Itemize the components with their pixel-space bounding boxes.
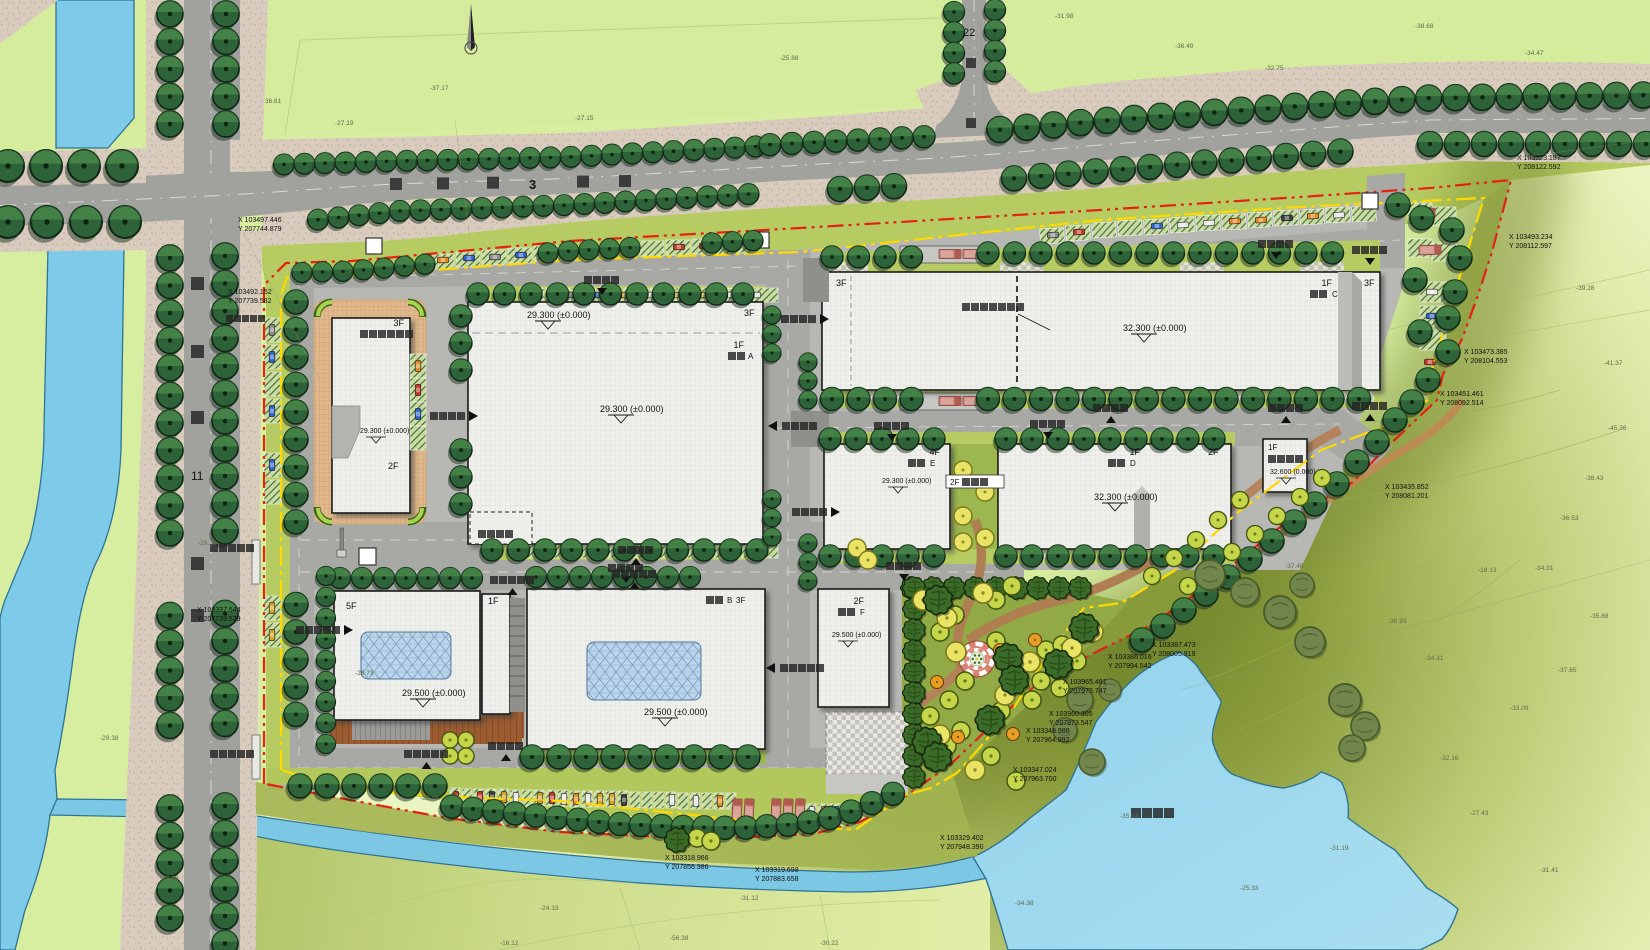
svg-text:Y 208122.592: Y 208122.592	[1517, 164, 1561, 171]
svg-text:-31.12: -31.12	[740, 895, 759, 902]
svg-text:29.500 (±0.000): 29.500 (±0.000)	[832, 632, 881, 639]
svg-text:X 103318.966: X 103318.966	[665, 855, 709, 862]
svg-text:3F: 3F	[836, 278, 847, 288]
svg-text:X 103523.187: X 103523.187	[1517, 155, 1561, 162]
svg-text:X 103473.385: X 103473.385	[1464, 349, 1508, 356]
svg-text:Y 207856.386: Y 207856.386	[665, 864, 709, 871]
svg-text:-36.49: -36.49	[1175, 43, 1194, 50]
svg-text:3F: 3F	[736, 596, 745, 605]
svg-text:Y 207963.700: Y 207963.700	[1013, 776, 1057, 783]
svg-text:36.81: 36.81	[265, 98, 282, 105]
svg-text:Y 208081.201: Y 208081.201	[1385, 493, 1429, 500]
svg-text:Y 207744.879: Y 207744.879	[238, 226, 282, 233]
svg-text:-28.73: -28.73	[355, 670, 374, 677]
svg-text:4F: 4F	[929, 447, 940, 457]
svg-text:X 103492.152: X 103492.152	[228, 289, 272, 296]
svg-text:X 103497.446: X 103497.446	[238, 217, 282, 224]
svg-text:-24.33: -24.33	[540, 905, 559, 912]
svg-text:-30.22: -30.22	[820, 940, 839, 947]
svg-text:Y 207994.542: Y 207994.542	[1108, 663, 1152, 670]
svg-text:-39.28: -39.28	[1576, 285, 1595, 292]
svg-text:Y 207973.547: Y 207973.547	[1049, 720, 1093, 727]
svg-text:-35.14: -35.14	[1120, 813, 1139, 820]
svg-text:Y 207739.582: Y 207739.582	[228, 298, 272, 305]
svg-text:X 103493.234: X 103493.234	[1509, 234, 1553, 241]
svg-text:-36.93: -36.93	[1388, 618, 1407, 625]
svg-text:11: 11	[191, 469, 204, 483]
svg-text:-31.41: -31.41	[1540, 867, 1559, 874]
svg-text:29.300 (±0.000): 29.300 (±0.000)	[360, 428, 409, 435]
svg-text:X 103960.305: X 103960.305	[1049, 711, 1093, 718]
svg-text:1F: 1F	[733, 340, 744, 350]
svg-text:-31.19: -31.19	[1330, 845, 1349, 852]
svg-text:Y 207739.529: Y 207739.529	[197, 616, 241, 623]
svg-text:-38.68: -38.68	[1415, 23, 1434, 30]
svg-text:29.500 (±0.000): 29.500 (±0.000)	[644, 707, 707, 717]
svg-text:-56.38: -56.38	[670, 935, 689, 942]
svg-text:32.300 (±0.000): 32.300 (±0.000)	[1094, 492, 1157, 502]
svg-text:3F: 3F	[393, 318, 404, 328]
svg-text:-27.19: -27.19	[335, 120, 354, 127]
svg-text:2F: 2F	[1208, 447, 1219, 457]
svg-text:3: 3	[529, 177, 536, 192]
svg-text:-28.48: -28.48	[420, 795, 439, 802]
svg-text:29.300 (±0.000): 29.300 (±0.000)	[527, 310, 590, 320]
svg-text:22: 22	[963, 27, 975, 39]
svg-text:Y 208112.597: Y 208112.597	[1509, 243, 1552, 250]
svg-text:2F: 2F	[853, 596, 864, 606]
svg-text:X 103965.481: X 103965.481	[1063, 679, 1107, 686]
svg-text:C: C	[1332, 290, 1338, 299]
svg-text:1F: 1F	[1268, 443, 1277, 452]
svg-text:Y 208005.919: Y 208005.919	[1152, 651, 1196, 658]
svg-text:X 103329.402: X 103329.402	[940, 835, 984, 842]
svg-text:-36.41: -36.41	[1608, 90, 1627, 97]
svg-text:-38.43: -38.43	[1585, 475, 1604, 482]
svg-text:-34.38: -34.38	[1015, 900, 1034, 907]
svg-text:F: F	[860, 608, 865, 617]
svg-text:-34.31: -34.31	[1425, 655, 1444, 662]
svg-text:3F: 3F	[1364, 278, 1375, 288]
svg-text:E: E	[930, 459, 935, 468]
svg-text:X 103386.016: X 103386.016	[1108, 654, 1152, 661]
svg-text:X 103348.986: X 103348.986	[1026, 728, 1070, 735]
svg-text:-18.13: -18.13	[1478, 567, 1497, 574]
svg-text:32.300 (±0.000): 32.300 (±0.000)	[1123, 323, 1186, 333]
svg-text:X 103387.473: X 103387.473	[1152, 642, 1196, 649]
svg-text:-33.09: -33.09	[1510, 705, 1529, 712]
svg-text:A: A	[748, 352, 754, 361]
svg-text:Y 207883.658: Y 207883.658	[755, 876, 799, 883]
svg-text:-45.36: -45.36	[1608, 425, 1627, 432]
svg-text:-34.47: -34.47	[1525, 50, 1544, 57]
svg-text:-36.53: -36.53	[1560, 515, 1579, 522]
svg-text:3F: 3F	[744, 308, 755, 318]
svg-text:-25.88: -25.88	[780, 55, 799, 62]
svg-text:B: B	[727, 596, 732, 605]
svg-text:-28.68: -28.68	[160, 875, 179, 882]
svg-text:1F: 1F	[488, 596, 499, 606]
svg-text:X 103435.852: X 103435.852	[1385, 484, 1429, 491]
svg-text:D: D	[1130, 459, 1136, 468]
svg-text:32.600 (0.000): 32.600 (0.000)	[1270, 469, 1316, 476]
svg-text:-35.88: -35.88	[1590, 613, 1609, 620]
svg-text:-34.31: -34.31	[1535, 565, 1554, 572]
svg-text:-37.17: -37.17	[430, 85, 449, 92]
svg-text:Y 207964.992: Y 207964.992	[1026, 737, 1070, 744]
svg-text:-37.48: -37.48	[1285, 563, 1304, 570]
svg-text:29.300 (±0.000): 29.300 (±0.000)	[882, 478, 931, 485]
svg-text:Y 208092.514: Y 208092.514	[1440, 400, 1484, 407]
svg-text:Y 208104.553: Y 208104.553	[1464, 358, 1508, 365]
svg-text:-27.15: -27.15	[575, 115, 594, 122]
svg-text:-32.75: -32.75	[1265, 65, 1284, 72]
svg-text:X 103319.698: X 103319.698	[755, 867, 799, 874]
svg-text:2F: 2F	[388, 461, 399, 471]
svg-text:X 103347.024: X 103347.024	[1013, 767, 1057, 774]
svg-text:5F: 5F	[346, 601, 357, 611]
svg-text:2F: 2F	[950, 478, 959, 487]
svg-text:X 103337.544: X 103337.544	[197, 607, 241, 614]
svg-text:Y 207975.747: Y 207975.747	[1063, 688, 1107, 695]
svg-text:-41.37: -41.37	[1604, 360, 1623, 367]
svg-text:X 103451.461: X 103451.461	[1440, 391, 1484, 398]
svg-text:-29.38: -29.38	[100, 735, 119, 742]
svg-text:-37.65: -37.65	[1558, 667, 1577, 674]
svg-text:1F: 1F	[1321, 278, 1332, 288]
svg-text:-25.33: -25.33	[1240, 885, 1259, 892]
svg-text:-27.43: -27.43	[1470, 810, 1489, 817]
svg-text:29.300 (±0.000): 29.300 (±0.000)	[600, 404, 663, 414]
svg-text:-32.16: -32.16	[1440, 755, 1459, 762]
svg-text:Y 207948.390: Y 207948.390	[940, 844, 984, 851]
svg-text:-31.98: -31.98	[1055, 13, 1074, 20]
svg-text:29.500 (±0.000): 29.500 (±0.000)	[402, 688, 465, 698]
svg-text:1F: 1F	[1129, 447, 1140, 457]
svg-text:-29.36: -29.36	[198, 540, 217, 547]
svg-text:-16.12: -16.12	[500, 940, 519, 947]
